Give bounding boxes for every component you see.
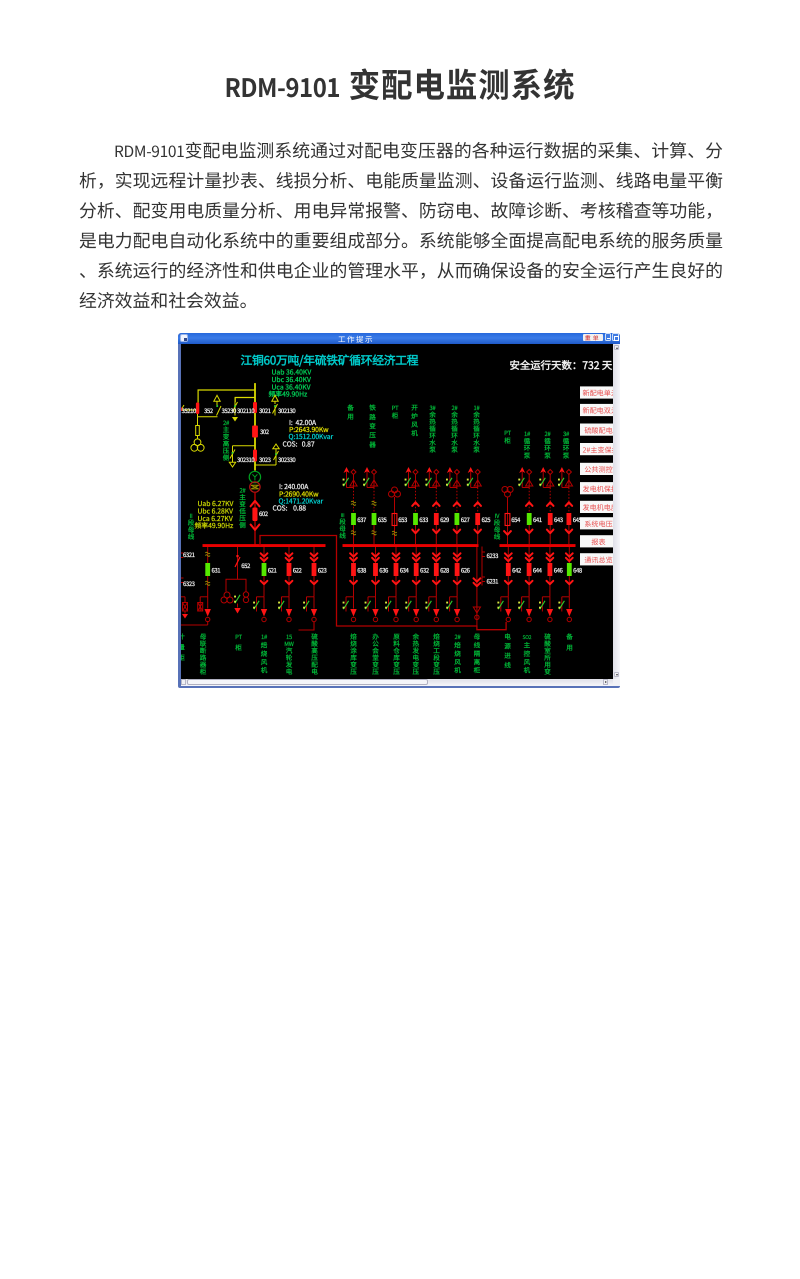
svg-text:6233: 6233 [486,551,499,560]
svg-text:线: 线 [339,530,346,540]
svg-text:302110: 302110 [237,406,255,415]
svg-text:公共测控: 公共测控 [584,465,612,475]
svg-text:3023: 3023 [259,455,272,464]
svg-text:柜: 柜 [234,642,242,652]
svg-text:新配电单元: 新配电单元 [582,388,613,398]
svg-text:压: 压 [433,666,440,676]
svg-text:PT: PT [235,631,242,640]
svg-text:623: 623 [317,565,327,574]
svg-text:352: 352 [204,406,214,415]
svg-text:646: 646 [553,565,563,574]
svg-text:626: 626 [460,565,470,574]
svg-text:泵: 泵 [544,450,551,460]
svg-text:硫酸配电: 硫酸配电 [584,425,612,435]
svg-text:线: 线 [504,659,511,669]
svg-text:644: 644 [532,565,542,574]
svg-text:发电机电度: 发电机电度 [582,503,613,513]
svg-text:628: 628 [440,565,450,574]
svg-text:电: 电 [504,631,511,641]
svg-text:侧: 侧 [239,519,246,529]
svg-text:用: 用 [565,642,573,652]
svg-text:643: 643 [554,514,564,523]
svg-text:35230: 35230 [221,406,237,415]
svg-text:621: 621 [267,565,277,574]
svg-text:COS: 0.87: COS: 0.87 [282,438,314,448]
svg-text:622: 622 [292,565,302,574]
svg-text:机: 机 [410,427,418,437]
svg-text:柜: 柜 [503,435,511,445]
svg-text:653: 653 [398,514,408,523]
svg-text:2#主变保护: 2#主变保护 [582,445,613,455]
svg-text:648: 648 [573,565,583,574]
svg-text:量: 量 [181,641,185,651]
svg-text:633: 633 [419,514,429,523]
svg-text:电: 电 [285,666,292,676]
svg-text:635: 635 [377,514,387,523]
svg-text:627: 627 [460,514,470,523]
svg-text:6323: 6323 [183,579,196,588]
svg-text:302330: 302330 [278,455,296,464]
svg-text:泵: 泵 [429,444,436,454]
svg-text:通讯总览: 通讯总览 [584,555,612,565]
svg-text:638: 638 [357,565,367,574]
svg-text:压: 压 [372,666,379,676]
svg-text:631: 631 [211,565,221,574]
svg-text:柜: 柜 [472,664,480,674]
svg-text:报表: 报表 [591,537,605,547]
svg-text:侧: 侧 [222,452,229,462]
svg-text:源: 源 [504,640,511,650]
svg-text:压: 压 [350,666,357,676]
svg-text:641: 641 [533,514,543,523]
svg-text:642: 642 [512,565,522,574]
svg-text:302310: 302310 [237,455,255,464]
svg-text:进: 进 [504,650,511,660]
svg-text:636: 636 [379,565,389,574]
svg-text:江铜60万吨/年硫铁矿循环经济工程: 江铜60万吨/年硫铁矿循环经济工程 [240,351,418,368]
svg-text:302130: 302130 [278,406,296,415]
svg-text:柜: 柜 [198,666,206,676]
svg-text:泵: 泵 [562,450,569,460]
svg-text:新配电双元: 新配电双元 [582,406,613,416]
svg-text:302: 302 [260,427,270,436]
svg-text:629: 629 [440,514,450,523]
svg-text:线: 线 [187,531,194,541]
svg-text:发电机保护: 发电机保护 [582,484,613,494]
svg-text:机: 机 [453,664,461,674]
svg-text:压: 压 [393,666,400,676]
svg-text:压: 压 [412,666,419,676]
svg-text:637: 637 [357,514,367,523]
svg-text:634: 634 [399,565,409,574]
svg-text:652: 652 [241,561,251,570]
svg-text:系统电压: 系统电压 [584,519,612,529]
svg-text:安全运行天数：732 天: 安全运行天数：732 天 [509,357,612,372]
svg-text:用: 用 [346,411,354,421]
svg-text:电: 电 [311,666,318,676]
svg-text:变: 变 [544,666,551,676]
svg-text:625: 625 [481,514,491,523]
svg-text:35210: 35210 [181,406,197,415]
svg-text:6321: 6321 [183,550,196,559]
svg-text:机: 机 [259,664,267,674]
svg-text:柜: 柜 [390,410,398,420]
svg-text:泵: 泵 [473,444,480,454]
svg-text:654: 654 [511,514,521,523]
svg-text:柜: 柜 [181,652,185,662]
svg-text:3021: 3021 [259,406,272,415]
svg-text:备: 备 [565,631,573,641]
svg-text:COS: 0.88: COS: 0.88 [272,502,306,512]
svg-text:泵: 泵 [451,444,458,454]
svg-text:频率49.90Hz: 频率49.90Hz [194,520,234,530]
svg-text:器: 器 [368,438,376,448]
svg-text:计: 计 [181,631,185,641]
svg-text:632: 632 [420,565,430,574]
svg-text:线: 线 [493,531,500,541]
svg-text:机: 机 [522,664,530,674]
svg-text:602: 602 [259,509,269,518]
svg-text:6231: 6231 [486,576,499,585]
svg-text:泵: 泵 [523,450,530,460]
